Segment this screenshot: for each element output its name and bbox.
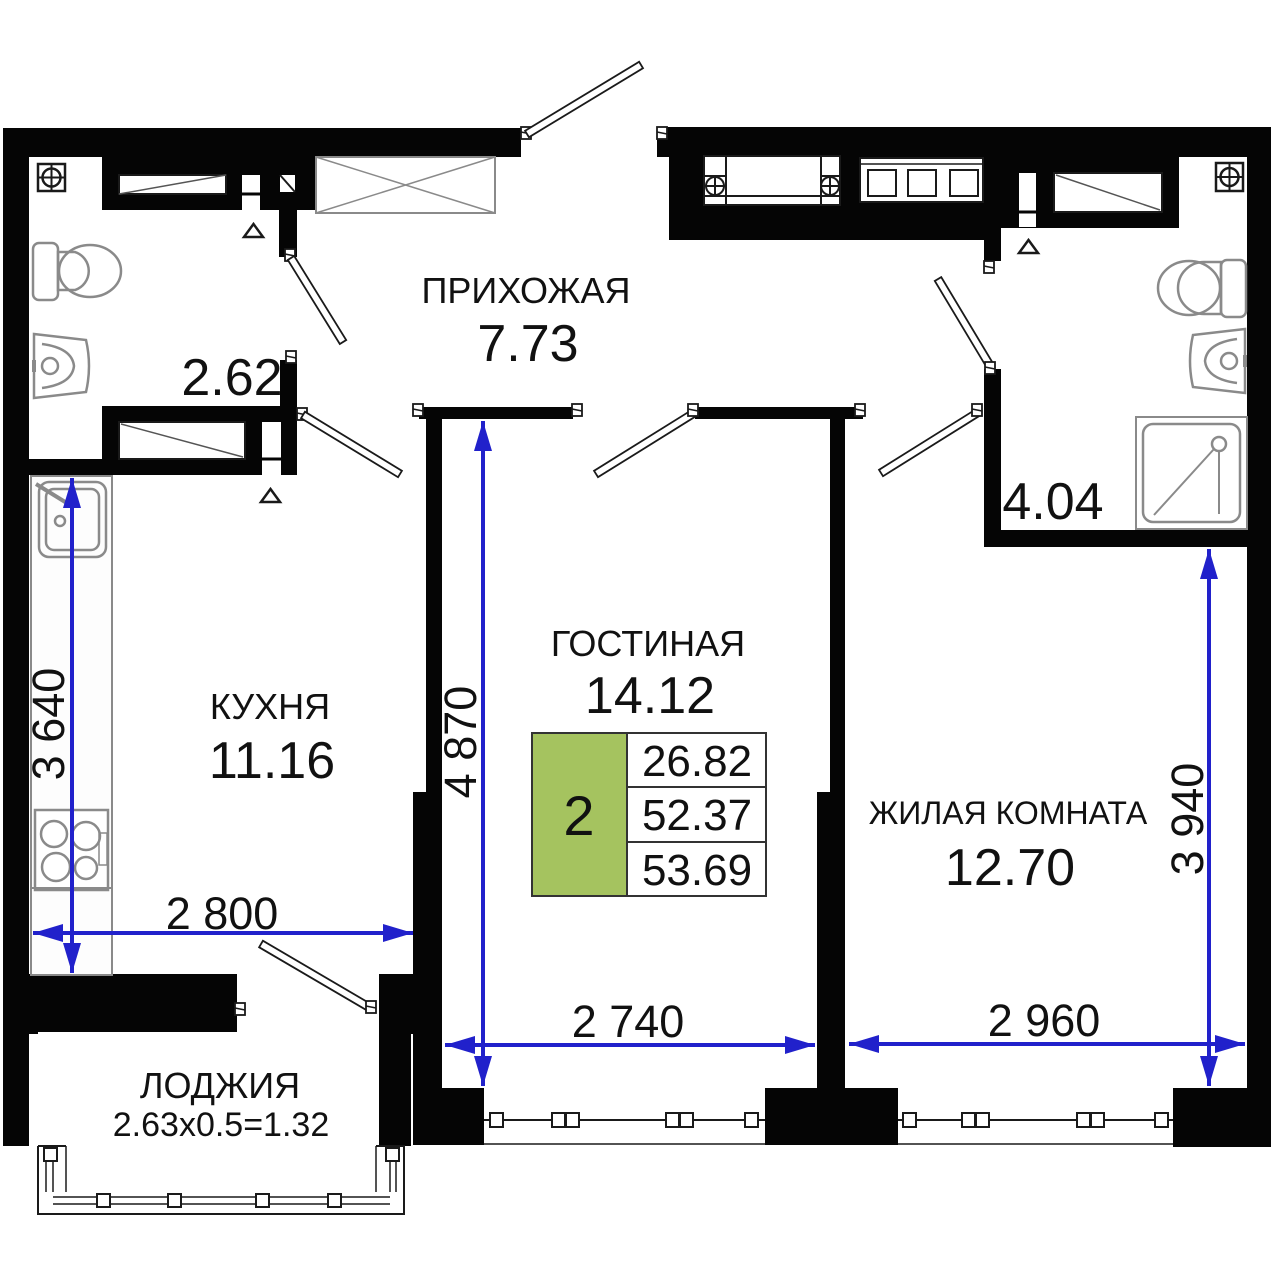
svg-text:52.37: 52.37 [642, 791, 752, 840]
svg-text:3 940: 3 940 [1162, 763, 1213, 876]
svg-text:14.12: 14.12 [585, 667, 715, 725]
svg-text:ЛОДЖИЯ: ЛОДЖИЯ [140, 1065, 300, 1106]
svg-text:2.62: 2.62 [181, 349, 282, 407]
svg-text:2: 2 [563, 784, 594, 847]
svg-text:2.63x0.5=1.32: 2.63x0.5=1.32 [113, 1106, 329, 1144]
svg-text:26.82: 26.82 [642, 737, 752, 786]
svg-text:ПРИХОЖАЯ: ПРИХОЖАЯ [421, 270, 630, 311]
svg-text:4.04: 4.04 [1002, 473, 1103, 531]
svg-text:2 800: 2 800 [166, 888, 279, 939]
svg-text:КУХНЯ: КУХНЯ [210, 686, 330, 727]
svg-text:7.73: 7.73 [477, 315, 578, 373]
svg-text:ЖИЛАЯ КОМНАТА: ЖИЛАЯ КОМНАТА [869, 795, 1148, 831]
svg-text:53.69: 53.69 [642, 846, 752, 895]
svg-text:11.16: 11.16 [209, 732, 335, 790]
svg-text:12.70: 12.70 [945, 839, 1075, 897]
svg-text:2 740: 2 740 [572, 996, 685, 1047]
svg-text:3 640: 3 640 [23, 668, 74, 781]
svg-text:ГОСТИНАЯ: ГОСТИНАЯ [551, 623, 745, 664]
svg-text:2 960: 2 960 [988, 995, 1101, 1046]
svg-text:4 870: 4 870 [435, 686, 486, 799]
